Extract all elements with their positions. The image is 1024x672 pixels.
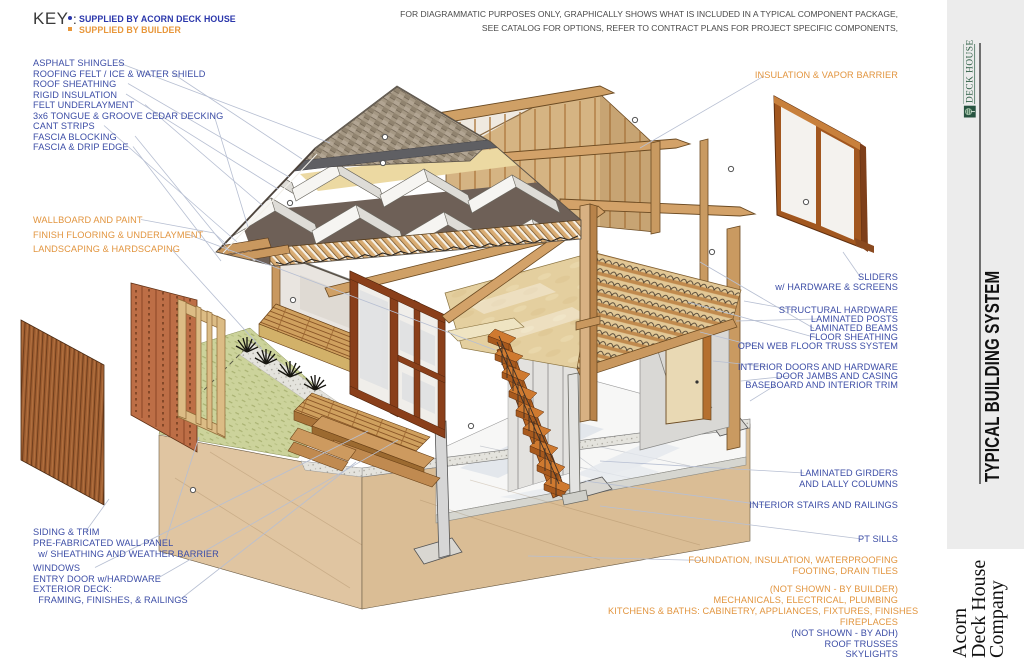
svg-text:DECK HOUSE: DECK HOUSE bbox=[966, 39, 976, 103]
